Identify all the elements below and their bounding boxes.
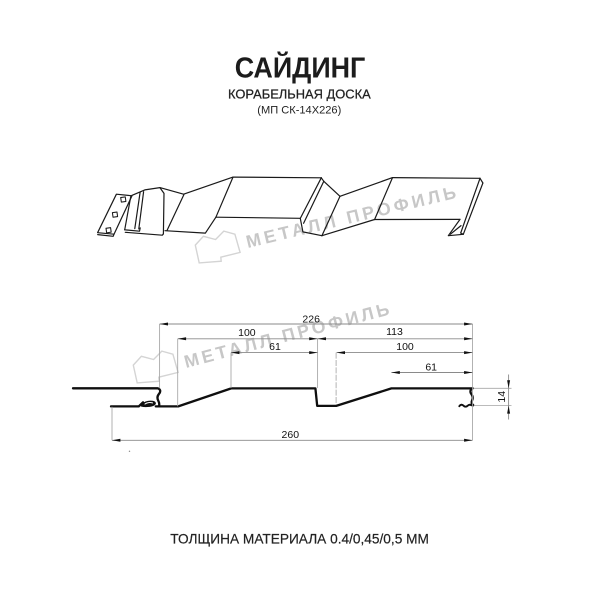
svg-text:113: 113 (386, 326, 403, 338)
svg-text:МЕТАЛЛ ПРОФИЛЬ: МЕТАЛЛ ПРОФИЛЬ (182, 298, 394, 372)
svg-text:(МП СК-14Х226): (МП СК-14Х226) (257, 104, 341, 116)
svg-text:100: 100 (238, 327, 256, 339)
svg-text:ТОЛЩИНА МАТЕРИАЛА 0.4/0,45/0,5: ТОЛЩИНА МАТЕРИАЛА 0.4/0,45/0,5 ММ (170, 530, 429, 546)
svg-text:226: 226 (302, 313, 320, 325)
svg-text:САЙДИНГ: САЙДИНГ (235, 51, 366, 84)
svg-text:КОРАБЕЛЬНАЯ ДОСКА: КОРАБЕЛЬНАЯ ДОСКА (228, 87, 371, 102)
svg-text:61: 61 (425, 361, 437, 373)
svg-text:14: 14 (496, 391, 508, 403)
svg-text:100: 100 (396, 341, 414, 353)
svg-text:61: 61 (269, 341, 281, 353)
svg-text:260: 260 (282, 429, 300, 441)
